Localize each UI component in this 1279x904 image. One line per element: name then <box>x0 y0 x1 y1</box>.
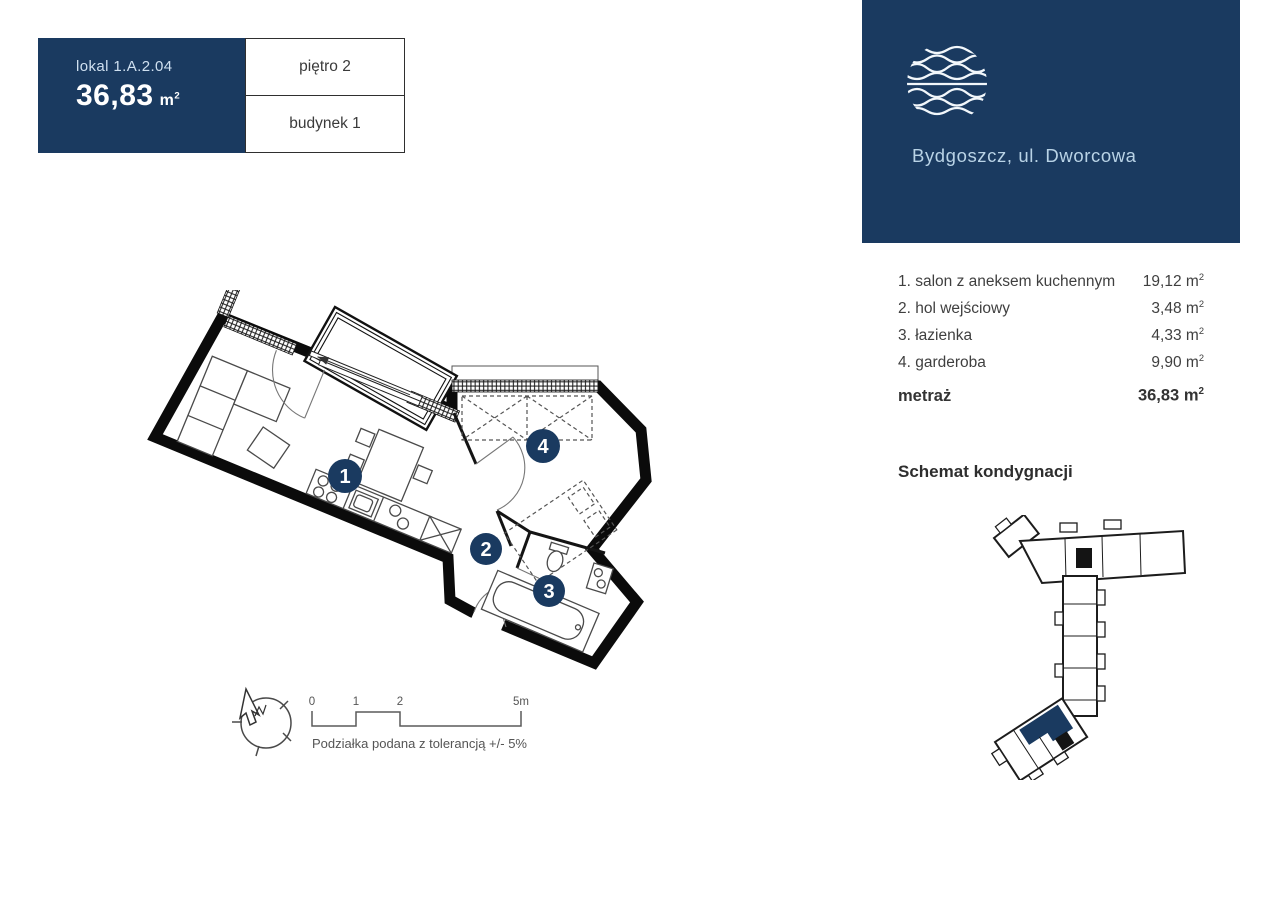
floor-cell: piętro 2 <box>246 39 404 96</box>
room-area-exp: 2 <box>1199 299 1204 309</box>
floor-building-table: piętro 2 budynek 1 <box>245 38 405 153</box>
schematic-building-outline <box>987 515 1185 780</box>
room-name: 3. łazienka <box>898 327 972 345</box>
room-marker-3: 3 <box>543 581 554 603</box>
room-marker-2: 2 <box>480 539 491 561</box>
room-name: 2. hol wejściowy <box>898 300 1010 318</box>
room-area-exp: 2 <box>1199 326 1204 336</box>
scale-bar-line <box>312 711 521 726</box>
room-area: 9,90 <box>1151 354 1181 371</box>
total-area-unit: m <box>1184 387 1199 405</box>
room-area-unit: m <box>1186 273 1199 290</box>
scale-bar: 0 1 2 5m Podziałka podana z tolerancją +… <box>309 696 529 751</box>
room-area-unit: m <box>1186 354 1199 371</box>
apartment-card-page: lokal 1.A.2.04 36,83m2 piętro 2 budynek … <box>0 0 1279 904</box>
room-area: 3,48 <box>1151 300 1181 317</box>
total-area-exp: 2 <box>1199 386 1205 397</box>
unit-area-value: 36,83m2 <box>76 79 245 113</box>
window-band-garderoba <box>452 380 598 392</box>
scale-tick-1: 1 <box>353 696 359 708</box>
scale-tolerance-note: Podziałka podana z tolerancją +/- 5% <box>312 736 527 751</box>
area-number: 36,83 <box>76 79 154 112</box>
scale-and-compass: 0 1 2 5m Podziałka podana z tolerancją +… <box>228 682 568 762</box>
legend-row-hol: 2. hol wejściowy 3,48 m2 <box>898 299 1204 326</box>
total-area: 36,83 <box>1138 387 1179 405</box>
building-cell: budynek 1 <box>246 96 404 152</box>
scale-tick-0: 0 <box>309 696 315 708</box>
floor-schematic-title: Schemat kondygnacji <box>898 462 1073 482</box>
room-marker-4: 4 <box>537 436 549 458</box>
area-unit: m <box>160 92 175 109</box>
room-name: 4. garderoba <box>898 354 986 372</box>
room-area: 4,33 <box>1151 327 1181 344</box>
north-compass-icon <box>232 689 291 756</box>
legend-row-garderoba: 4. garderoba 9,90 m2 <box>898 353 1204 380</box>
unit-header-navy-box: lokal 1.A.2.04 36,83m2 <box>38 38 245 153</box>
room-area-unit: m <box>1186 327 1199 344</box>
room-area-exp: 2 <box>1199 353 1204 363</box>
unit-header-card: lokal 1.A.2.04 36,83m2 piętro 2 budynek … <box>38 38 405 153</box>
room-area-exp: 2 <box>1199 272 1204 282</box>
legend-row-lazienka: 3. łazienka 4,33 m2 <box>898 326 1204 353</box>
room-area: 19,12 <box>1143 273 1182 290</box>
legend-row-salon: 1. salon z aneksem kuchennym 19,12 m2 <box>898 272 1204 299</box>
scale-tick-5m: 5m <box>513 696 529 708</box>
area-unit-exponent: 2 <box>174 91 180 102</box>
room-legend: 1. salon z aneksem kuchennym 19,12 m2 2.… <box>898 272 1204 413</box>
scale-tick-2: 2 <box>397 696 403 708</box>
project-location-label: Bydgoszcz, ul. Dworcowa <box>912 145 1137 167</box>
total-label: metraż <box>898 387 951 406</box>
window-band-corner <box>217 290 240 317</box>
apartment-floor-plan: 1 2 3 4 <box>140 290 680 690</box>
legend-total-row: metraż 36,83 m2 <box>898 386 1204 413</box>
building-floor-schematic <box>985 515 1220 780</box>
unit-id-label: lokal 1.A.2.04 <box>76 58 245 75</box>
brand-panel: Bydgoszcz, ul. Dworcowa <box>862 0 1240 243</box>
room-name: 1. salon z aneksem kuchennym <box>898 273 1115 291</box>
room-marker-1: 1 <box>339 466 350 488</box>
room-area-unit: m <box>1186 300 1199 317</box>
wave-sphere-logo-icon <box>904 40 990 126</box>
